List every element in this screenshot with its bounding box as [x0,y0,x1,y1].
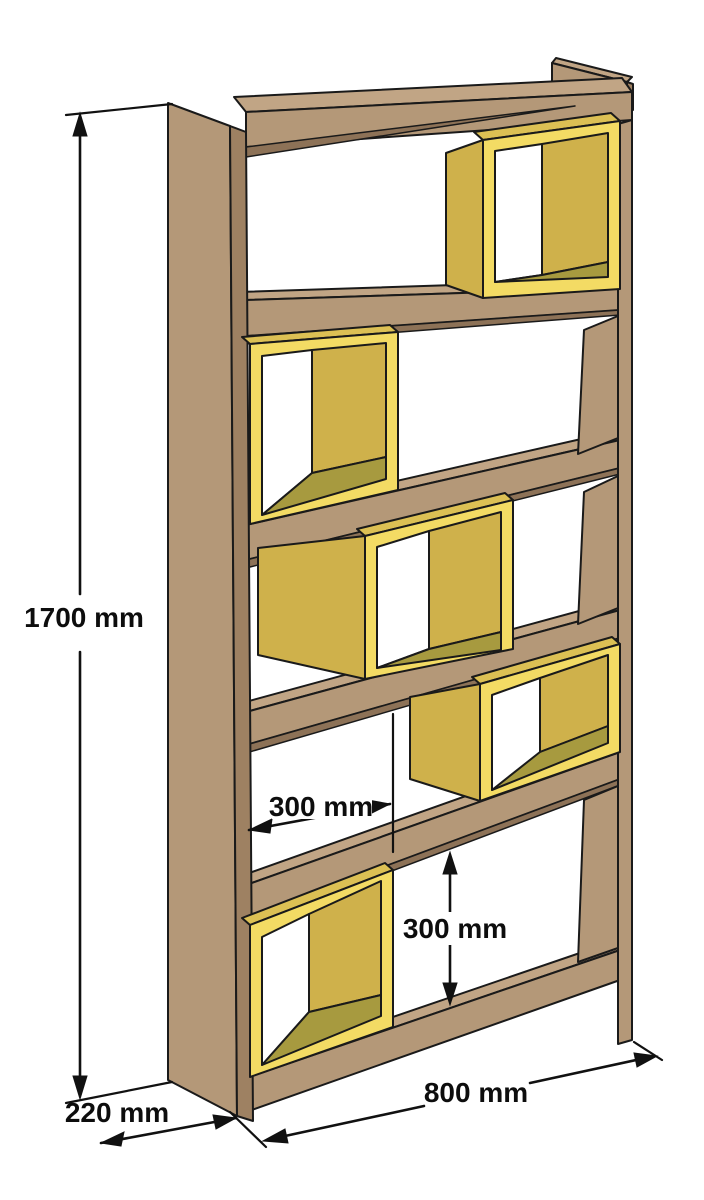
height-label: 1700 mm [24,602,144,633]
cell3-right-wall [578,476,618,624]
cell2-right-wall [578,316,618,454]
diagram-canvas: 1700 mm 220 mm 800 mm 300 mm 300 mm [0,0,704,1200]
cube-box-2 [242,325,398,524]
cell5-right-wall [578,786,618,962]
cell-height-label: 300 mm [403,913,507,944]
width-label: 800 mm [424,1077,528,1108]
left-panel [168,103,253,1121]
dimension-cell-height: 300 mm [403,852,507,1005]
box-offset-label: 300 mm [269,791,373,822]
cube-box-1 [446,113,620,298]
bookshelf-dimension-drawing: 1700 mm 220 mm 800 mm 300 mm 300 mm [0,0,704,1200]
depth-label: 220 mm [65,1097,169,1128]
dimension-height: 1700 mm [24,104,172,1103]
